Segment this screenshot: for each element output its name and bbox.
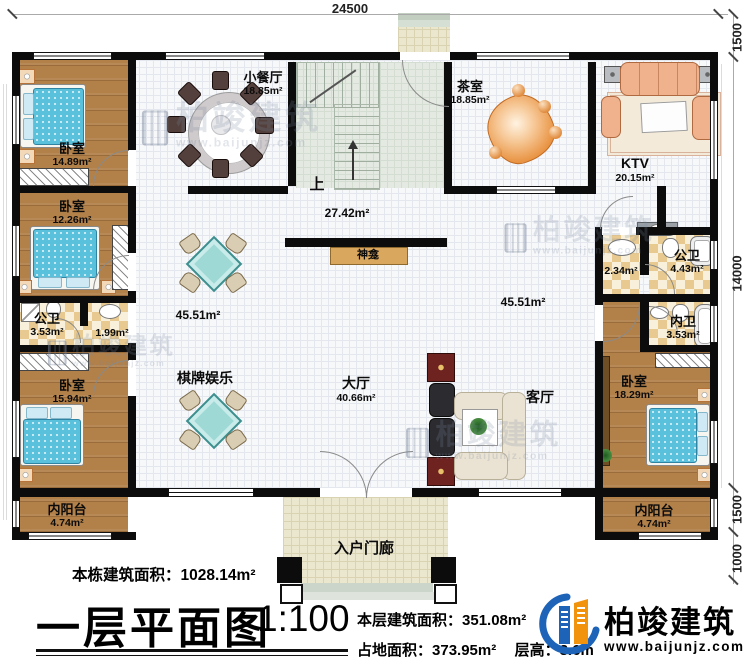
room-label-bath-e: 公卫 4.43m² [670, 248, 703, 276]
dining-chair [212, 71, 229, 90]
door-opening [128, 150, 136, 186]
room-label-porch: 入户门廊 [334, 540, 394, 558]
wall [188, 186, 288, 194]
exterior-offset-line [3, 84, 4, 520]
window [12, 500, 20, 528]
wall [444, 186, 496, 194]
room-label-balcony-w: 内阳台 4.74m² [47, 502, 86, 530]
wall [640, 345, 718, 352]
window [33, 52, 112, 60]
pillow [697, 436, 708, 456]
pillow [697, 412, 708, 432]
porch-step [301, 583, 433, 592]
room-label-living: 客厅 [526, 389, 554, 406]
door-opening [128, 360, 136, 396]
ktv-sofa [601, 96, 621, 138]
dining-chair [212, 159, 229, 178]
wall [588, 62, 596, 186]
stair-direction-arrow [352, 148, 354, 180]
window [478, 488, 562, 497]
closet [655, 353, 713, 368]
side-table [427, 457, 455, 486]
porch-pillar [277, 557, 302, 583]
nightstand [18, 468, 33, 482]
window [12, 225, 20, 277]
dining-chair [167, 116, 186, 133]
door-opening [128, 303, 136, 343]
pillow [23, 93, 34, 115]
title-underline [36, 655, 348, 656]
room-label-shrine: 神龛 [357, 249, 379, 262]
dimension-right-4: 1000 [730, 529, 745, 589]
room-label-ktv: KTV 20.15m² [615, 155, 654, 184]
window [28, 532, 112, 540]
porch-pillar [431, 557, 456, 583]
brand-name: 柏竣建筑 [604, 597, 736, 642]
wall [12, 186, 136, 193]
sink [99, 304, 121, 319]
side-table [427, 353, 455, 382]
window [168, 488, 254, 497]
room-label-bedroom-sw: 卧室 15.94m² [52, 378, 91, 406]
room-label-hall: 大厅 40.66m² [336, 375, 375, 404]
room-label-bath-inner: 内卫 3.53m² [666, 314, 699, 342]
plan-scale: 1:100 [257, 598, 350, 640]
ktv-sofa [620, 62, 700, 96]
window [710, 498, 718, 528]
pillow [26, 407, 48, 419]
room-label-bath-w: 公卫 3.53m² [30, 311, 63, 339]
room-label-bedroom-w: 卧室 12.26m² [52, 199, 91, 227]
wall [640, 302, 649, 345]
ktv-table [640, 101, 688, 133]
tea-stool [489, 146, 502, 159]
dimension-right-1: 1500 [730, 8, 745, 68]
wall [12, 296, 136, 303]
dimension-right-2: 14000 [730, 244, 745, 304]
tea-stool [512, 84, 525, 97]
armchair [429, 383, 455, 417]
nightstand [19, 69, 35, 84]
bed-mattress [33, 88, 84, 145]
ktv-speaker [604, 66, 621, 83]
area-label-upper: 27.42m² [325, 206, 370, 220]
wall [595, 341, 603, 488]
pillow [66, 277, 90, 288]
bed [20, 404, 84, 466]
brand-website: www.baijunjz.com [604, 639, 745, 654]
wall [80, 302, 88, 326]
dining-table-center [211, 115, 231, 135]
bed-mattress [23, 419, 81, 464]
door-opening [128, 253, 136, 291]
exterior-offset-line [6, 84, 7, 520]
bed [30, 226, 100, 290]
plant [470, 418, 487, 435]
bed-mattress [33, 229, 97, 278]
bed-mattress [649, 408, 697, 463]
pillow [50, 407, 72, 419]
dining-chair [255, 117, 274, 134]
wall [285, 238, 447, 247]
floor-area: 本层建筑面积：351.08m² [357, 609, 526, 630]
stair-arrow-head [348, 140, 358, 149]
porch-pillar-base [434, 584, 457, 604]
wall [595, 488, 603, 540]
area-label-right: 45.51m² [501, 295, 546, 309]
pillow [23, 118, 34, 140]
room-label-vanity-e: 2.34m² [604, 265, 637, 277]
sliding-door [496, 186, 556, 194]
bed [646, 404, 710, 466]
window [710, 420, 718, 464]
plan-title: 一层平面图 [36, 592, 271, 656]
pillow [38, 277, 62, 288]
room-label-tea: 茶室 18.85m² [450, 79, 489, 107]
stairs-up-label: 上 [309, 176, 324, 194]
window [710, 305, 718, 343]
door-opening [400, 52, 450, 60]
tea-stool [538, 100, 551, 113]
area-label-left: 45.51m² [176, 308, 221, 322]
room-label-balcony-e: 内阳台 4.74m² [634, 503, 673, 531]
room-label-vanity-w: 1.99m² [95, 327, 128, 339]
wall [12, 52, 718, 60]
closet [18, 353, 89, 371]
brand-logo-icon [537, 590, 601, 662]
closet [18, 168, 89, 186]
brand-logo [537, 590, 601, 662]
title-underline [36, 649, 348, 652]
window [12, 95, 20, 145]
door-opening [595, 305, 603, 341]
window [476, 52, 570, 60]
floor-plan: 柏竣建筑 www.baijunjz.com 柏竣建筑 www.baijunjz.… [0, 0, 750, 666]
window [710, 100, 718, 180]
wall [12, 345, 136, 352]
sofa [454, 452, 508, 480]
exterior-offset-line [721, 64, 722, 488]
wall [412, 488, 718, 497]
armchair [429, 418, 455, 456]
room-label-dining: 小餐厅 18.85m² [243, 70, 282, 98]
rear-step [398, 20, 450, 27]
wall [556, 186, 596, 194]
dimension-top: 24500 [310, 1, 390, 16]
room-label-games: 棋牌娱乐 [177, 370, 233, 387]
window [638, 532, 702, 540]
window [165, 52, 265, 60]
window [12, 400, 20, 458]
room-label-bedroom-se: 卧室 18.29m² [614, 374, 653, 402]
room-label-bedroom-nw: 卧室 14.89m² [52, 141, 91, 169]
sink [608, 239, 636, 256]
bed [20, 84, 86, 148]
wall [595, 294, 718, 302]
building-total-area: 本栋建筑面积：1028.14m² [72, 563, 256, 585]
wall [12, 488, 320, 497]
window [710, 240, 718, 270]
wall [288, 62, 296, 186]
tea-stool [549, 126, 562, 139]
nightstand [19, 149, 35, 164]
